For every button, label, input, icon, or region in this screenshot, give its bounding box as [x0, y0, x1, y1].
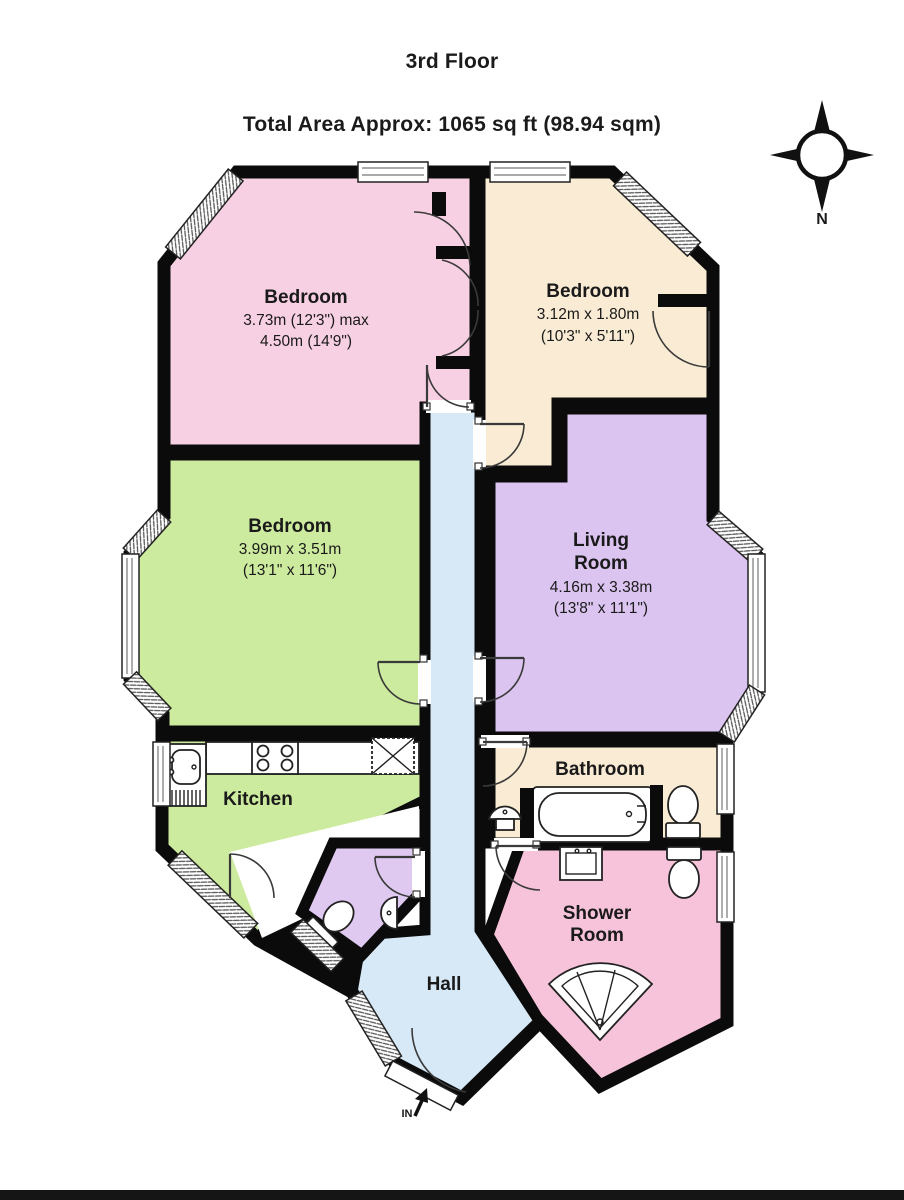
kitchen-hob	[252, 742, 298, 774]
living-room-dim1: 4.16m x 3.38m	[550, 579, 653, 596]
bedroom1-name: Bedroom	[264, 287, 347, 308]
shower-toilet	[667, 847, 701, 898]
bottom-border-bar	[0, 1190, 904, 1200]
window-bedroom2-top	[490, 162, 570, 182]
floorplan-page: 3rd Floor Total Area Approx: 1065 sq ft …	[0, 0, 904, 1200]
bedroom3-dim1: 3.99m x 3.51m	[239, 541, 342, 558]
bay-window-right-middle	[748, 554, 765, 692]
shower-basin	[560, 847, 602, 880]
bedroom2-name: Bedroom	[546, 281, 629, 302]
bedroom2-dim2: (10'3" x 5'11")	[541, 328, 635, 345]
bedroom3-dim2: (13'1" x 11'6")	[243, 562, 337, 579]
window-bedroom1-top	[358, 162, 428, 182]
shower-room-name-2: Room	[570, 925, 624, 946]
bathroom-toilet	[666, 786, 700, 838]
compass-icon: N	[770, 100, 874, 228]
kitchen-sink	[166, 744, 206, 806]
bay-window-left-middle	[122, 554, 139, 678]
living-room-name-2: Room	[574, 553, 628, 574]
window-bathroom-right	[717, 744, 734, 814]
floorplan-svg: Bedroom 3.73m (12'3") max 4.50m (14'9") …	[0, 0, 904, 1200]
living-room-name-1: Living	[573, 530, 629, 551]
living-room-dim2: (13'8" x 11'1")	[554, 600, 648, 617]
bathroom-name: Bathroom	[555, 759, 645, 780]
bathroom-wall-stub-right	[650, 785, 663, 843]
window-kitchen-left	[153, 742, 170, 806]
rooms	[130, 172, 757, 1098]
bedroom2-dim1: 3.12m x 1.80m	[537, 306, 640, 323]
kitchen-storage-unit	[372, 738, 414, 774]
compass-north-label: N	[816, 211, 828, 228]
kitchen-name: Kitchen	[223, 789, 293, 810]
bedroom3-name: Bedroom	[248, 516, 331, 537]
shower-room-name-1: Shower	[563, 903, 632, 924]
window-shower-right	[717, 852, 734, 922]
bathtub	[533, 787, 652, 842]
room-bedroom-3	[130, 455, 425, 731]
bedroom1-dim1: 3.73m (12'3") max	[243, 312, 369, 329]
entrance-in-marker: IN	[402, 1088, 429, 1120]
hall-name: Hall	[427, 974, 462, 995]
bedroom1-dim2: 4.50m (14'9")	[260, 333, 352, 350]
bathroom-wall-stub-left	[520, 788, 534, 843]
entrance-in-label: IN	[402, 1108, 413, 1120]
